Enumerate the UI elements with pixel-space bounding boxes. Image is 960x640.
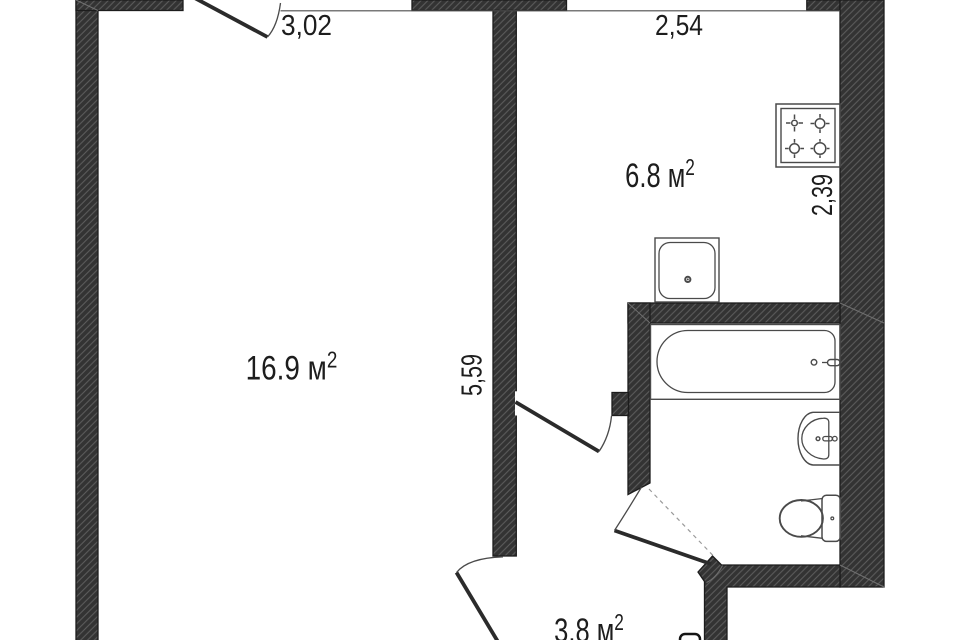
- svg-text:16.9 м2: 16.9 м2: [246, 348, 338, 387]
- svg-text:3,02: 3,02: [281, 10, 332, 42]
- svg-text:5,59: 5,59: [457, 354, 489, 396]
- svg-text:2,39: 2,39: [807, 174, 839, 216]
- svg-text:3.8 м2: 3.8 м2: [554, 611, 624, 640]
- svg-text:2,54: 2,54: [655, 10, 703, 42]
- svg-text:6.8 м2: 6.8 м2: [625, 156, 695, 195]
